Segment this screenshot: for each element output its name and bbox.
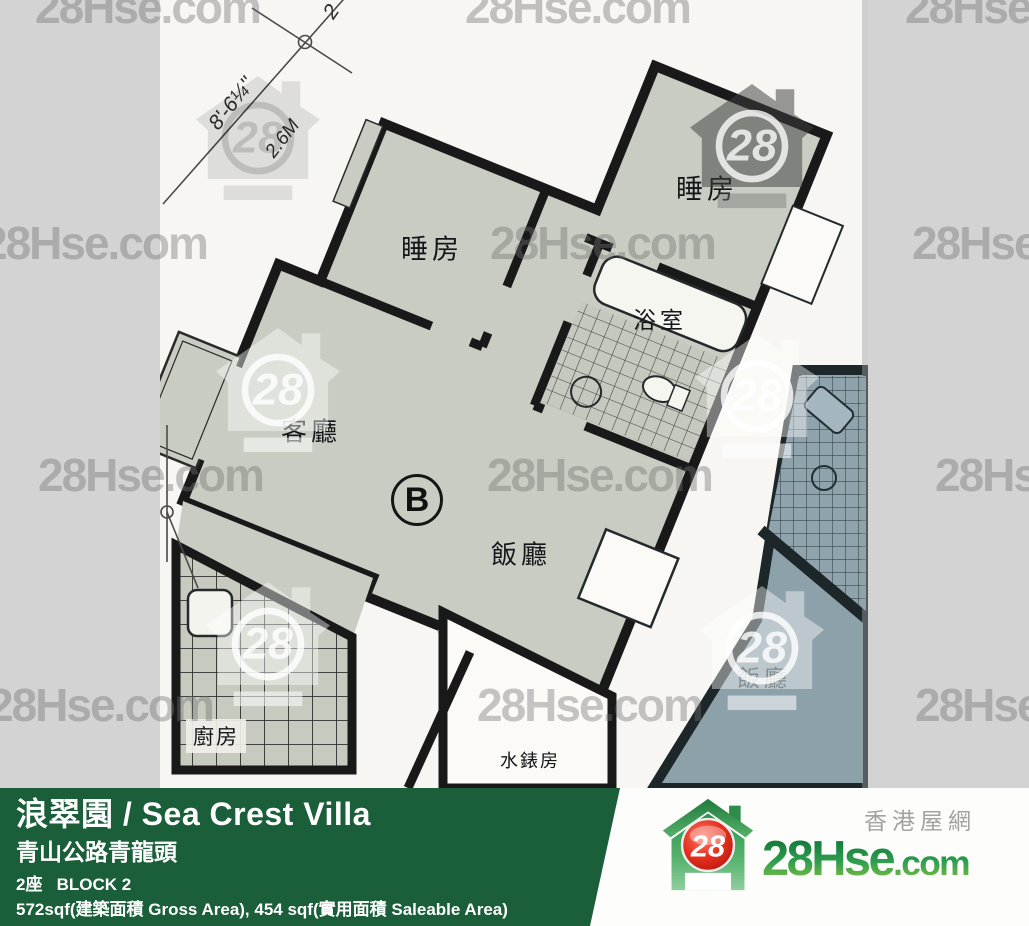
28hse-logo: 28 28Hse.com 香港屋網	[650, 788, 1029, 926]
svg-text:28: 28	[736, 622, 787, 673]
estate-address: 青山公路青龍頭	[16, 833, 177, 867]
28hse-badge-number: 28	[690, 829, 726, 864]
watermark-house-icon: 28	[691, 330, 823, 466]
floor-plan-scan: 睡房 睡房 浴室 客廳 飯廳 廚房 水錶房 飯廳 B 8'-6¼'' 2.6M …	[0, 0, 1029, 788]
property-floorplan-page: 睡房 睡房 浴室 客廳 飯廳 廚房 水錶房 飯廳 B 8'-6¼'' 2.6M …	[0, 0, 1029, 926]
svg-text:28: 28	[731, 370, 782, 421]
watermark-text: 28Hse.com	[0, 678, 213, 732]
unit-b-letter: B	[405, 481, 430, 520]
svg-text:28: 28	[252, 364, 303, 415]
watermark-house-icon: 28	[686, 80, 818, 216]
watermark-text: 28Hse.com	[915, 678, 1029, 732]
matte-left	[0, 0, 160, 788]
watermark-text: 28Hse.com	[38, 448, 263, 502]
watermark-text: 28Hse.com	[0, 216, 207, 270]
label-bathroom: 浴室	[633, 301, 687, 335]
watermark-text: 28Hse.com	[477, 678, 702, 732]
watermark-house-icon: 28	[202, 578, 334, 714]
estate-name: 浪翠園 / Sea Crest Villa	[16, 789, 371, 835]
watermark-text: 28Hse.com	[465, 0, 690, 34]
area-info: 572sqf(建築面積 Gross Area), 454 sqf(實用面積 Sa…	[16, 895, 508, 920]
watermark-text: 28Hse.com	[935, 448, 1029, 502]
brand-suffix: .com	[893, 844, 969, 883]
matte-right	[868, 0, 1029, 788]
svg-text:28: 28	[242, 618, 293, 669]
watermark-house-icon: 28	[696, 582, 828, 718]
logo-tagline: 香港屋網	[864, 802, 976, 836]
svg-text:28Hse.com: 28Hse.com	[762, 832, 969, 886]
scan-edge	[862, 0, 868, 788]
floor-plan-drawing	[0, 0, 1029, 788]
svg-text:28: 28	[232, 112, 283, 163]
brand-main: 28Hse	[762, 832, 895, 886]
block-number: 2座 BLOCK 2	[16, 870, 131, 895]
watermark-text: 28Hse.com	[35, 0, 260, 34]
info-footer: 浪翠園 / Sea Crest Villa 青山公路青龍頭 2座 BLOCK 2…	[0, 788, 1029, 926]
label-dining-room: 飯廳	[491, 535, 551, 572]
watermark-text: 28Hse.com	[487, 448, 712, 502]
watermark-house-icon: 28	[212, 324, 344, 460]
svg-text:28: 28	[726, 120, 777, 171]
label-bedroom-top: 睡房	[401, 228, 463, 267]
watermark-house-icon: 28	[192, 72, 324, 208]
footer-green-band: 浪翠園 / Sea Crest Villa 青山公路青龍頭 2座 BLOCK 2…	[0, 788, 620, 926]
28hse-brand-text: 28Hse.com	[762, 832, 974, 886]
label-water-meter-room: 水錶房	[500, 747, 560, 773]
unit-b-badge: B	[391, 474, 443, 526]
watermark-text: 28Hse.com	[905, 0, 1029, 34]
watermark-text: 28Hse.com	[912, 216, 1029, 270]
28hse-house-icon: 28	[658, 797, 758, 893]
watermark-text: 28Hse.com	[490, 216, 715, 270]
